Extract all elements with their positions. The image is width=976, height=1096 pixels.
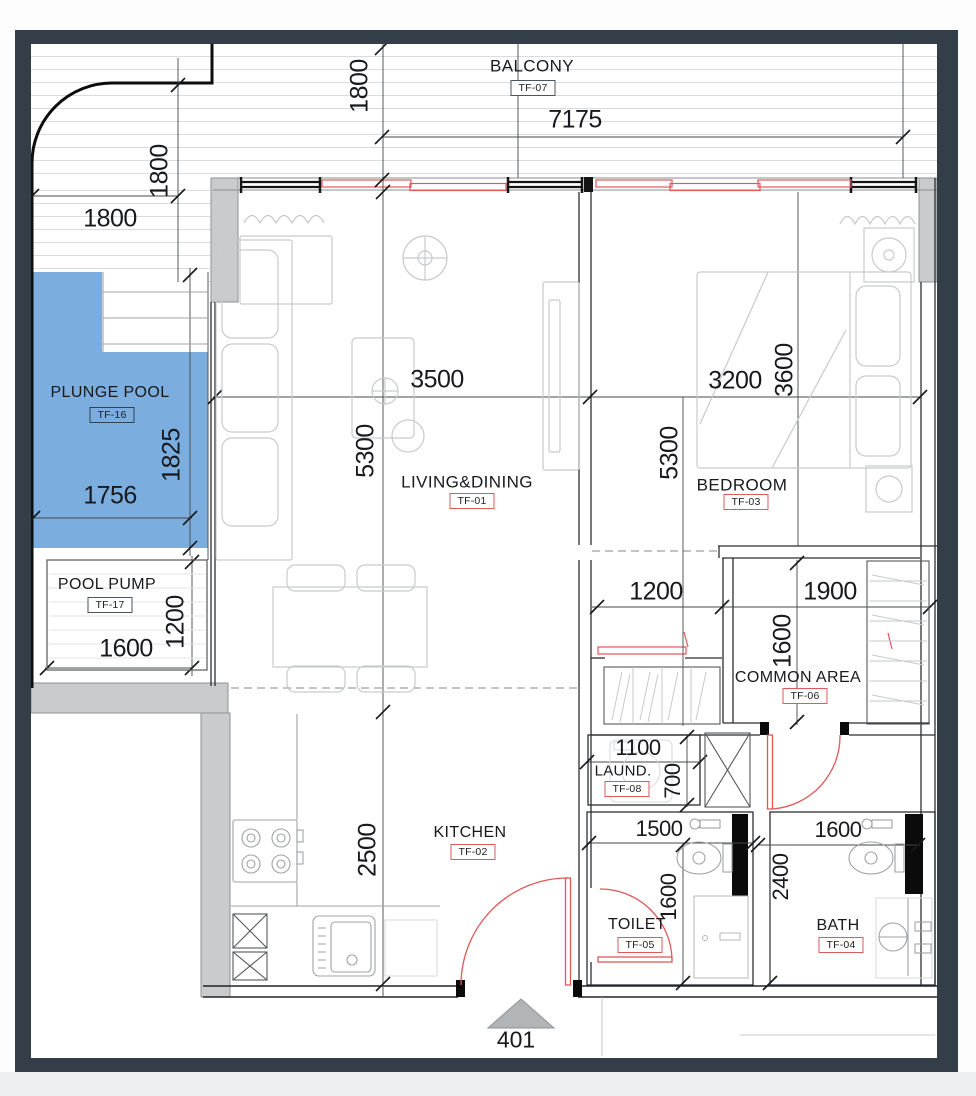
drawing-frame-bottom [15, 1058, 958, 1072]
dim-bedroom-length: 5300 [658, 426, 683, 480]
room-tag-toilet: TF-05 [617, 937, 662, 953]
dim-kitchen-depth: 2500 [356, 823, 381, 877]
dim-pool-pump-depth: 1200 [164, 595, 189, 649]
dim-toilet-width: 1500 [636, 818, 683, 840]
dim-bed-zone-width: 3600 [773, 343, 798, 397]
room-label-common-area: COMMON AREA [735, 670, 861, 686]
dim-corner-width: 1800 [83, 207, 137, 232]
dim-bedroom-width: 3200 [708, 369, 762, 394]
dim-common-width: 1900 [803, 580, 857, 605]
plunge-pool-steps [102, 272, 208, 352]
dim-pool-width: 1756 [83, 484, 137, 509]
dim-balcony-width: 7175 [548, 108, 602, 133]
dim-living-length: 5300 [354, 424, 379, 478]
dim-pool-pump-width: 1600 [99, 637, 153, 662]
dim-common-depth: 1600 [771, 614, 796, 668]
dim-laundry-width: 1100 [615, 737, 660, 759]
dim-bath-width: 1600 [815, 819, 862, 841]
dim-balcony-depth: 1800 [348, 59, 373, 113]
room-label-pool-pump: POOL PUMP [58, 577, 156, 593]
dim-bath-depth: 2400 [770, 854, 792, 901]
room-tag-balcony: TF-07 [510, 80, 555, 96]
room-tag-living-dining: TF-01 [449, 493, 494, 509]
room-tag-plunge-pool: TF-16 [89, 407, 134, 423]
dim-pool-length: 1825 [160, 428, 185, 482]
room-tag-bath: TF-04 [818, 937, 863, 953]
dim-living-width: 3500 [410, 368, 464, 393]
room-label-living-dining: LIVING&DINING [401, 474, 533, 491]
drawing-frame-left [15, 30, 31, 1072]
room-tag-bedroom: TF-03 [723, 494, 768, 510]
room-tag-common-area: TF-06 [782, 688, 827, 704]
unit-number: 401 [497, 1029, 535, 1052]
dim-corner-depth: 1800 [148, 144, 173, 198]
room-tag-laundry: TF-08 [604, 781, 649, 797]
page-margin [0, 1072, 976, 1096]
room-label-bedroom: BEDROOM [697, 477, 788, 494]
room-label-bath: BATH [816, 918, 859, 934]
floor-plan: BALCONY TF-07 7175 1800 1800 1800 PLUNGE… [0, 0, 976, 1096]
dim-corridor-opening: 1200 [629, 580, 683, 605]
room-tag-pool-pump: TF-17 [87, 597, 132, 613]
room-tag-kitchen: TF-02 [450, 844, 495, 860]
dim-toilet-depth: 1600 [658, 874, 680, 921]
room-label-laundry: LAUND. [595, 764, 652, 779]
drawing-frame-right [937, 30, 958, 1072]
room-label-kitchen: KITCHEN [433, 825, 506, 841]
room-label-balcony: BALCONY [490, 58, 574, 75]
room-label-plunge-pool: PLUNGE POOL [50, 385, 169, 401]
dim-laundry-depth: 700 [662, 763, 684, 798]
drawing-frame-top [15, 30, 958, 44]
